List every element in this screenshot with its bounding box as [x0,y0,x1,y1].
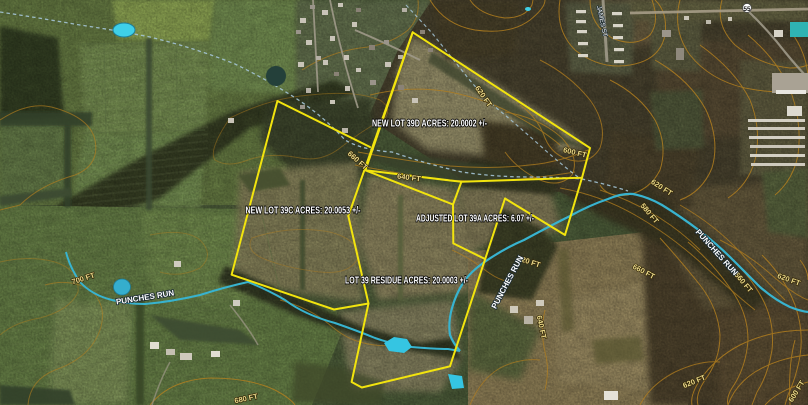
svg-text:LOT 39 RESIDUE ACRES: 20.0003: LOT 39 RESIDUE ACRES: 20.0003 +/- [345,275,468,287]
svg-text:NEW LOT 39C ACRES: 20.0053 +/-: NEW LOT 39C ACRES: 20.0053 +/- [246,204,361,216]
svg-text:NEW LOT 39D ACRES: 20.0002 +/-: NEW LOT 39D ACRES: 20.0002 +/- [372,118,487,130]
svg-text:55: 55 [743,6,751,13]
svg-text:ADJUSTED LOT 39A ACRES: 6.07 +: ADJUSTED LOT 39A ACRES: 6.07 +/- [416,212,534,224]
